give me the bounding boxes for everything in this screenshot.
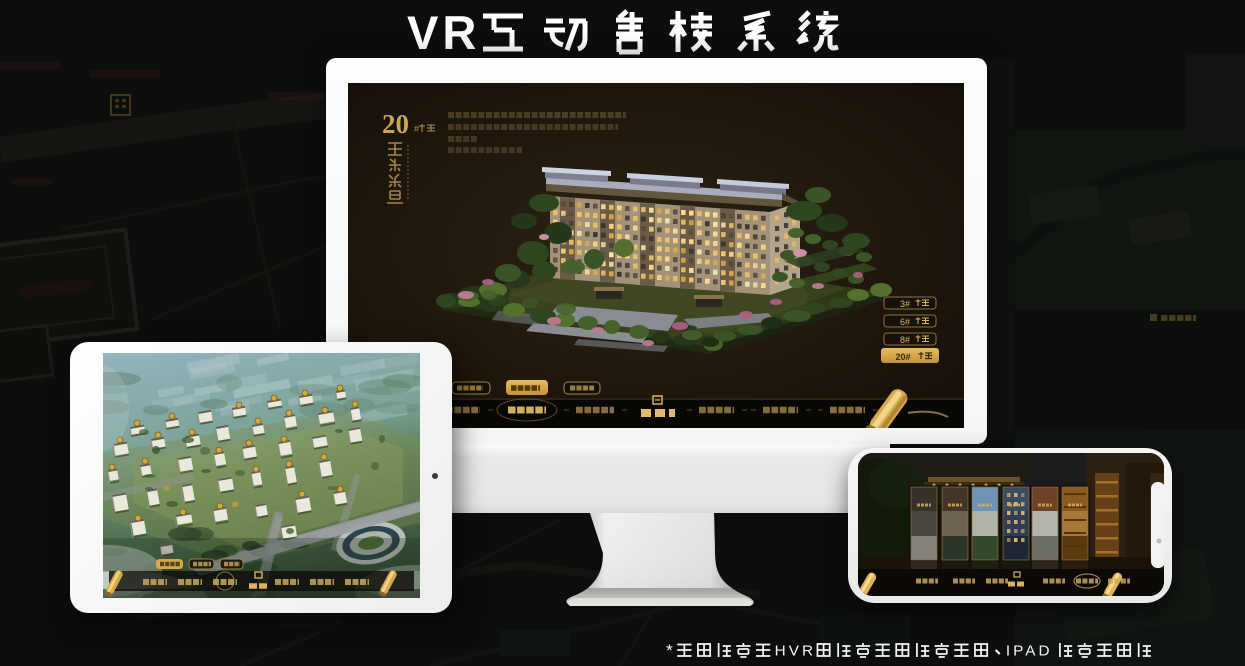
svg-text:6#: 6# (900, 317, 910, 327)
svg-text:8#: 8# (900, 335, 910, 345)
svg-text:IPAD: IPAD (1006, 643, 1053, 660)
svg-text:20: 20 (382, 109, 409, 139)
svg-text:3#: 3# (900, 299, 910, 309)
svg-text:HVR: HVR (775, 643, 816, 660)
svg-text:20#: 20# (895, 352, 910, 362)
svg-text:*: * (666, 640, 673, 660)
svg-text:VR: VR (407, 6, 480, 58)
svg-text:#: # (414, 124, 419, 134)
